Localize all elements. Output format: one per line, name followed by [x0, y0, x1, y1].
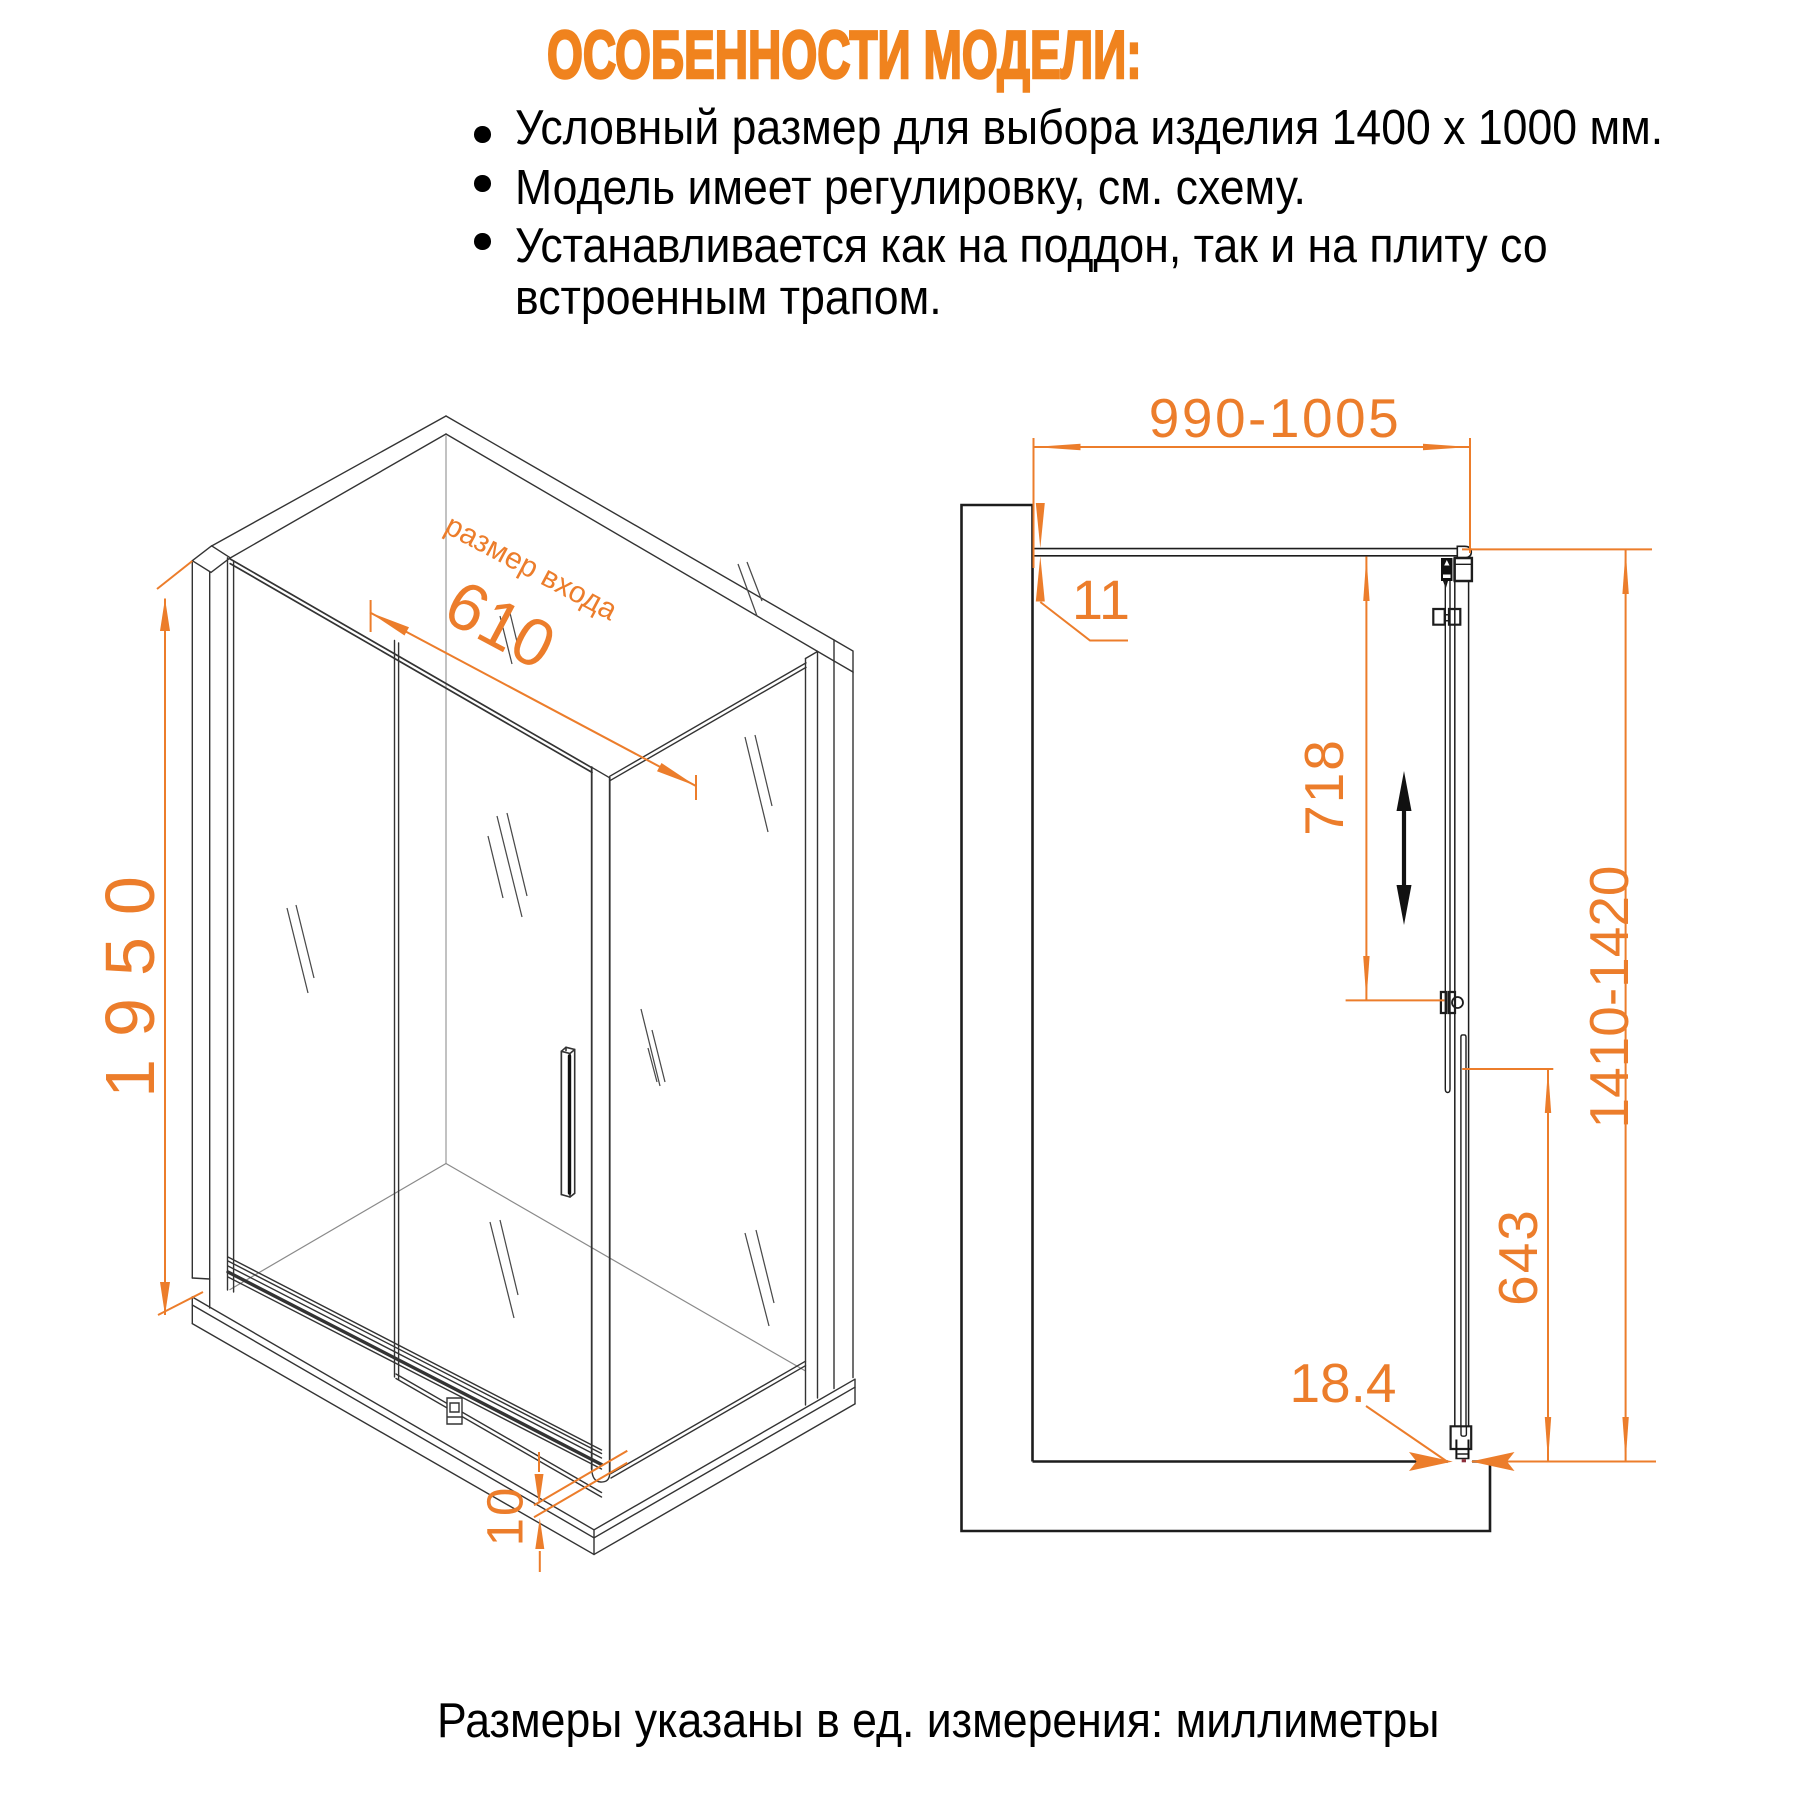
svg-text:1410-1420: 1410-1420 — [1578, 865, 1640, 1128]
svg-text:1950: 1950 — [91, 854, 169, 1098]
svg-text:990-1005: 990-1005 — [1149, 387, 1401, 449]
svg-text:718: 718 — [1293, 738, 1355, 836]
svg-text:18.4: 18.4 — [1289, 1352, 1396, 1414]
svg-text:643: 643 — [1487, 1208, 1549, 1306]
svg-text:11: 11 — [1072, 568, 1130, 631]
svg-text:10: 10 — [477, 1486, 534, 1547]
